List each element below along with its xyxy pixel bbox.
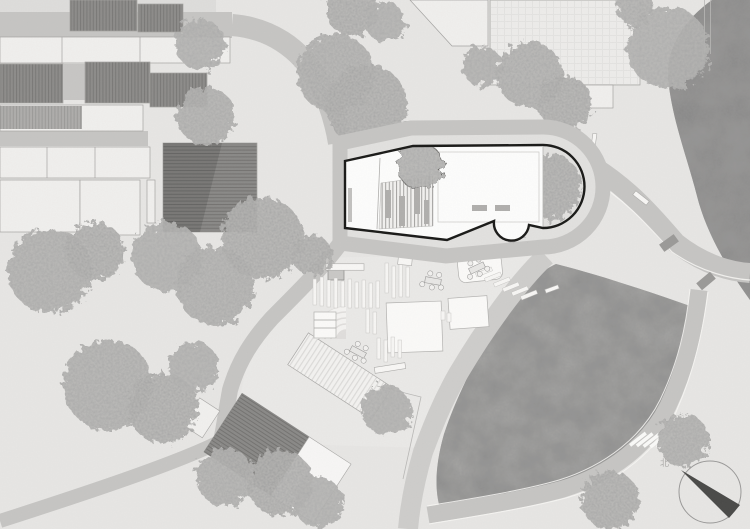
site-plan-drawing: 北 bbox=[0, 0, 750, 529]
paper-grain-overlay bbox=[0, 0, 750, 529]
site-plan-svg: 北 bbox=[0, 0, 750, 529]
